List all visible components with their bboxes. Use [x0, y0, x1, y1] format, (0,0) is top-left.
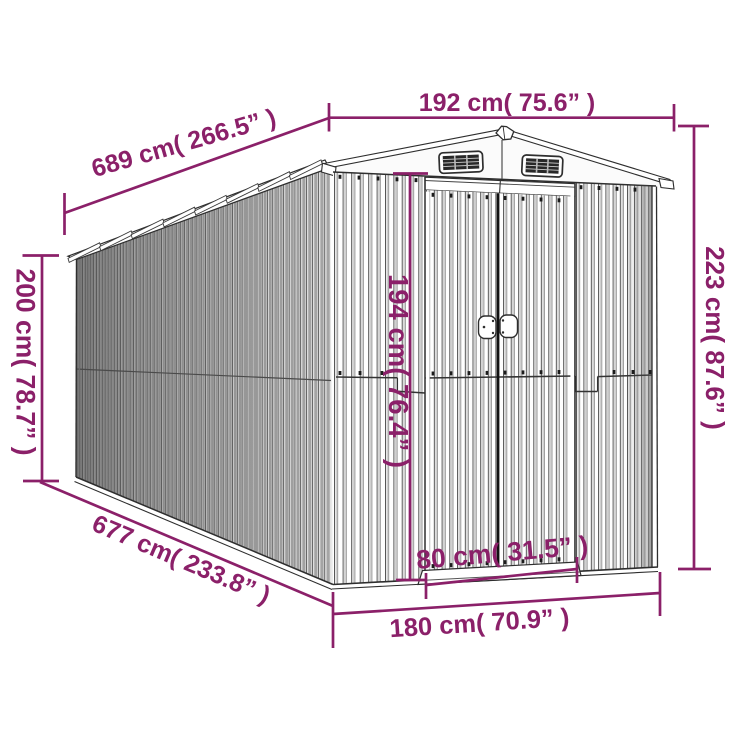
svg-text:200 cm( 78.7” ): 200 cm( 78.7” )	[11, 268, 41, 455]
svg-text:194 cm( 76.4” ): 194 cm( 76.4” )	[383, 274, 414, 468]
svg-text:223 cm( 87.6” ): 223 cm( 87.6” )	[700, 246, 730, 430]
svg-text:192 cm( 75.6” ): 192 cm( 75.6” )	[419, 89, 596, 117]
